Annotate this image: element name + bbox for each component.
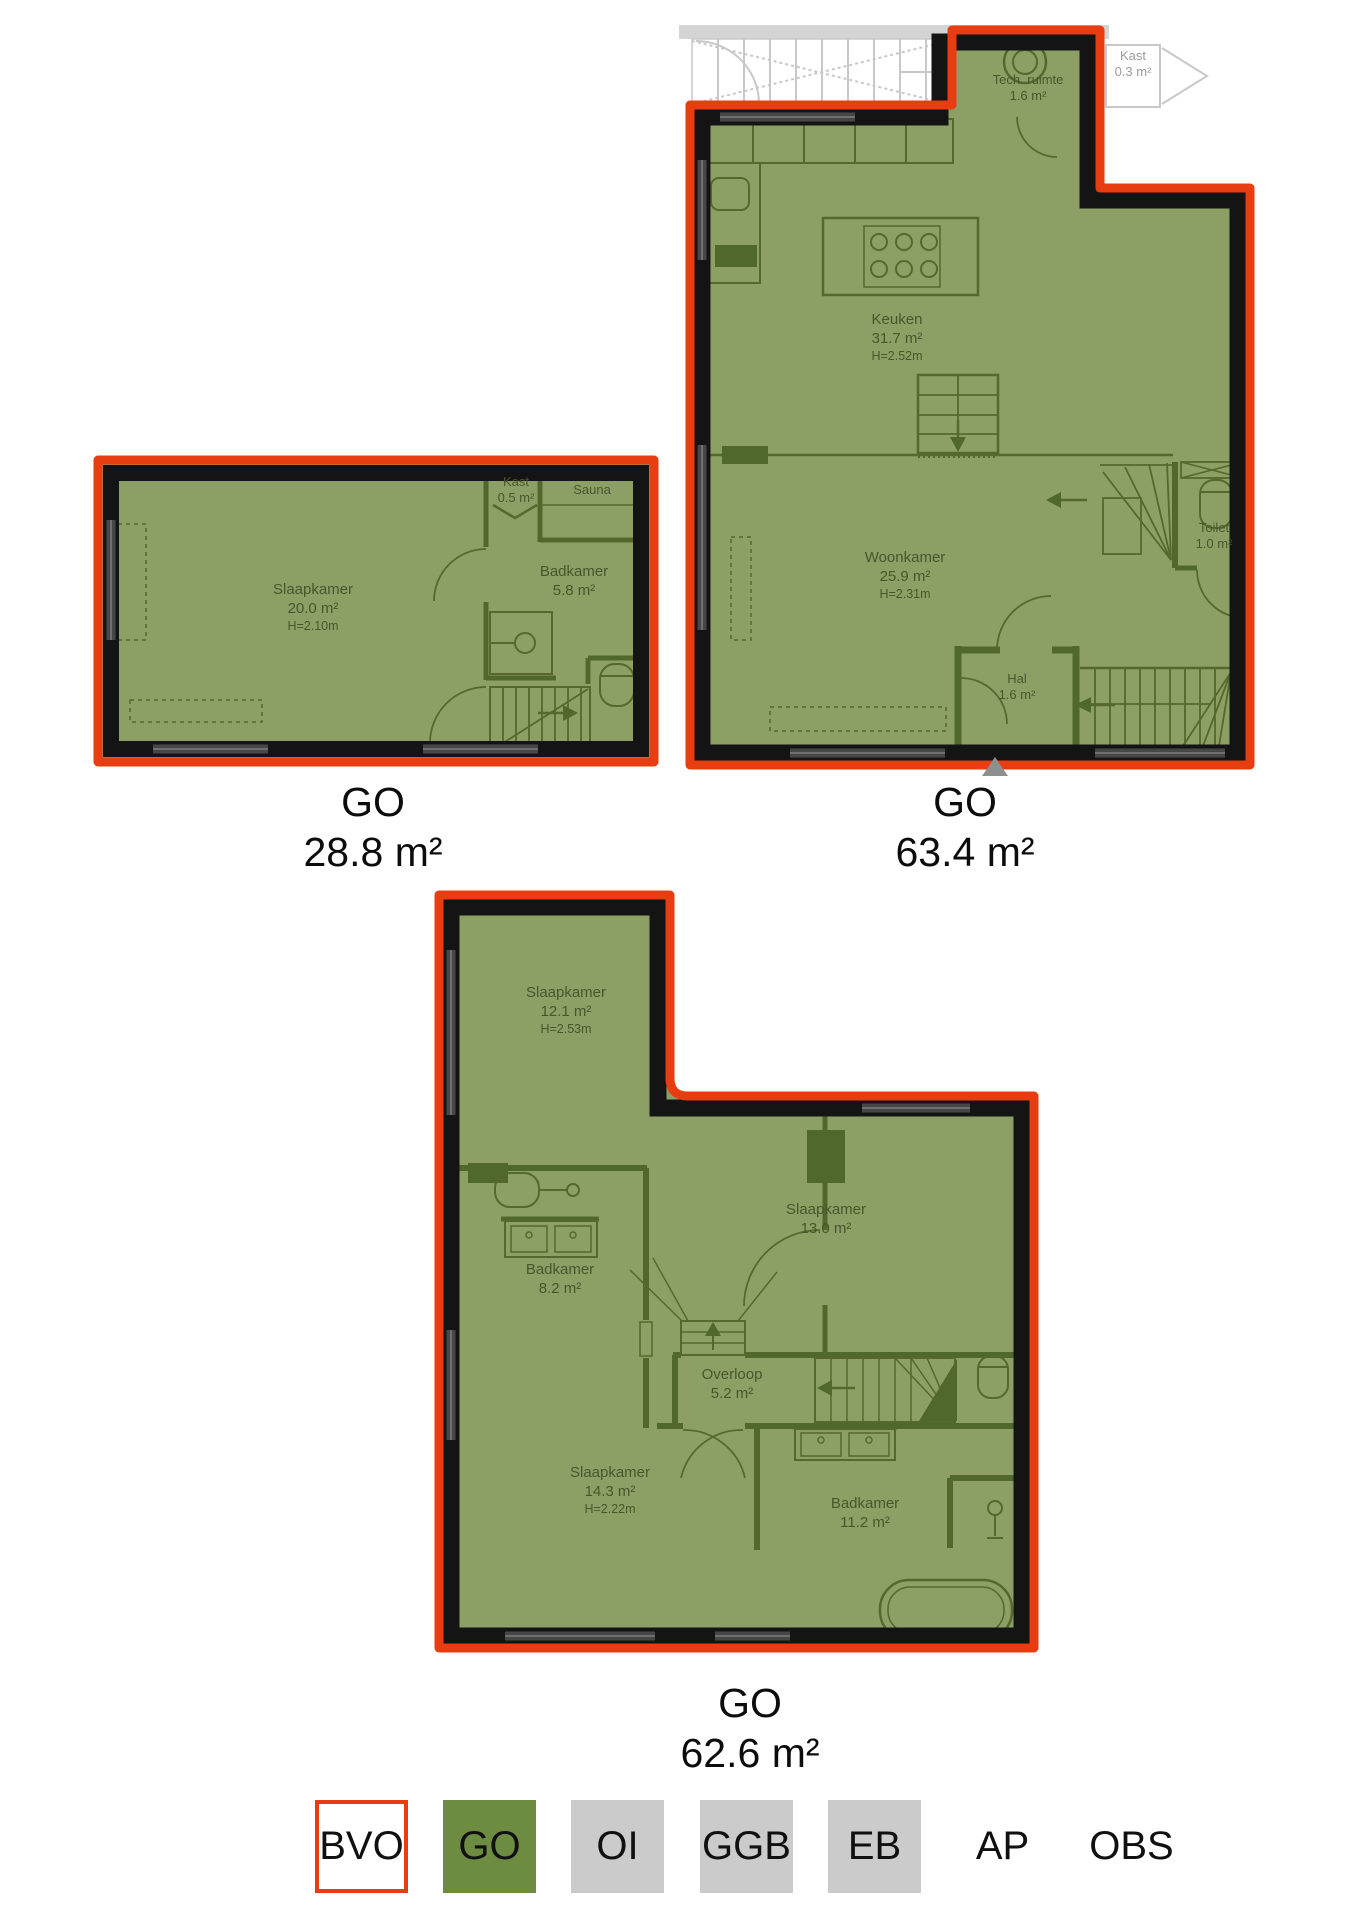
room-label-badkamer-2: Badkamer11.2 m² xyxy=(831,1494,899,1532)
pointer-triangle-icon xyxy=(982,757,1008,776)
go-area-overlay xyxy=(690,30,1250,765)
legend-swatch-go: GO xyxy=(443,1800,536,1893)
floor-plan-basement xyxy=(88,450,668,775)
room-label-slaapkamer-1: Slaapkamer12.1 m² H=2.53m xyxy=(526,983,606,1037)
legend-label-obs: OBS xyxy=(1085,1800,1178,1893)
caption-plan-second-floor: GO62.6 m² xyxy=(681,1678,820,1778)
legend-swatch-ggb: GGB xyxy=(700,1800,793,1893)
room-label-sauna: Sauna xyxy=(573,482,611,498)
room-label-slaapkamer: Slaapkamer20.0 m² H=2.10m xyxy=(273,580,353,634)
shaft-block xyxy=(807,1130,845,1183)
legend-swatch-oi: OI xyxy=(571,1800,664,1893)
room-label-hal: Hal1.6 m² xyxy=(999,671,1036,703)
room-label-kast: Kast0.5 m² xyxy=(498,474,535,506)
caption-plan-basement: GO28.8 m² xyxy=(304,777,443,877)
room-label-badkamer: Badkamer5.8 m² xyxy=(540,562,608,600)
room-label-woonkamer: Woonkamer25.9 m² H=2.31m xyxy=(865,548,946,602)
room-label-badkamer-1: Badkamer8.2 m² xyxy=(526,1260,594,1298)
room-label-kast-exterior: Kast0.3 m² xyxy=(1115,48,1152,80)
room-label-slaapkamer-2: Slaapkamer13.0 m² xyxy=(786,1200,866,1238)
caption-plan-first-floor: GO63.4 m² xyxy=(896,777,1035,877)
room-label-keuken: Keuken31.7 m² H=2.52m xyxy=(871,310,922,364)
room-label-toilet: Toilet1.0 m² xyxy=(1196,520,1233,552)
legend-label-ap: AP xyxy=(956,1800,1049,1893)
floorplan-page: Slaapkamer20.0 m² H=2.10m Kast0.5 m² Sau… xyxy=(0,0,1358,1920)
legend-swatch-bvo: BVO xyxy=(315,1800,408,1893)
room-label-slaapkamer-3: Slaapkamer14.3 m² H=2.22m xyxy=(570,1463,650,1517)
legend-swatch-eb: EB xyxy=(828,1800,921,1893)
floor-plan-second-floor xyxy=(425,880,1050,1665)
room-label-overloop: Overloop5.2 m² xyxy=(702,1365,763,1403)
room-label-tech-ruimte: Tech. ruimte1.6 m² xyxy=(993,72,1064,104)
